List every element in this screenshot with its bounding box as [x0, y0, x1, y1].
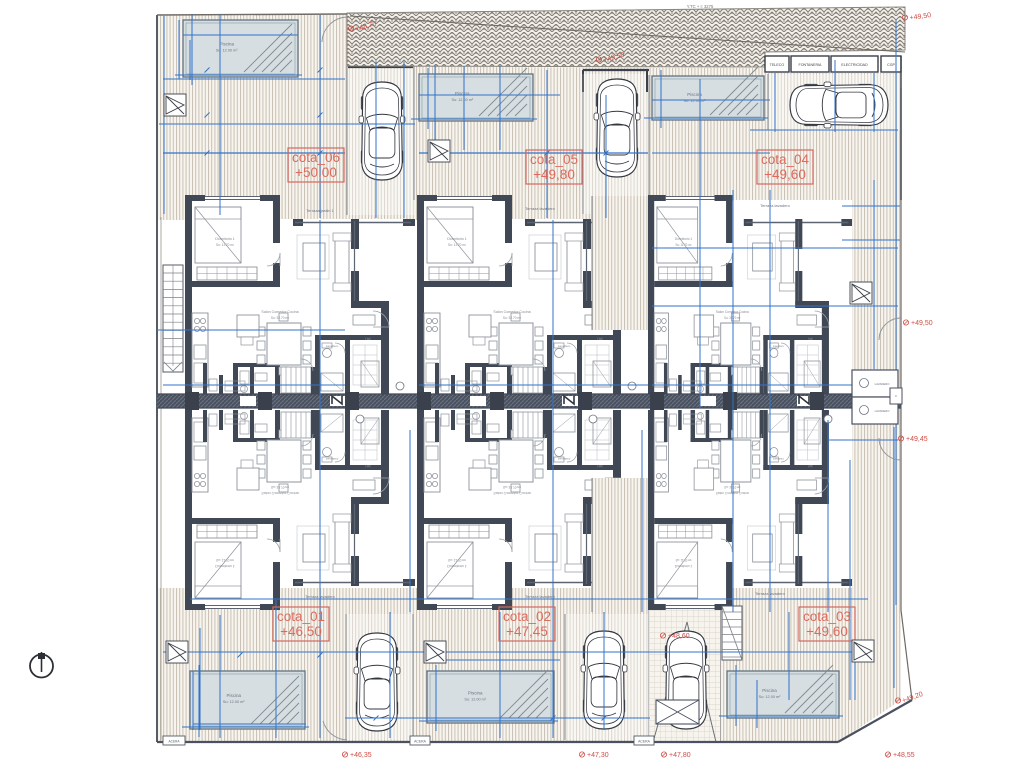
- svg-text:cota_03: cota_03: [803, 609, 851, 624]
- svg-text:Su: 12.00 m²: Su: 12.00 m²: [759, 695, 781, 699]
- svg-text:Lavadero: Lavadero: [326, 344, 339, 348]
- svg-text:Lavadero: Lavadero: [326, 457, 339, 461]
- svg-text:CGP: CGP: [887, 63, 895, 67]
- svg-text:+49,60: +49,60: [806, 624, 848, 639]
- svg-text:Su: 32.70 m²: Su: 32.70 m²: [503, 316, 521, 320]
- svg-text:TELECO: TELECO: [770, 63, 785, 67]
- svg-text:+48,60: +48,60: [668, 633, 690, 640]
- svg-text:Terraza lavadero: Terraza lavadero: [760, 203, 791, 208]
- svg-text:Piscina: Piscina: [219, 42, 234, 47]
- svg-text:+49,80: +49,80: [533, 167, 575, 182]
- svg-text:Su: 11.70 m²: Su: 11.70 m²: [448, 243, 466, 247]
- svg-text:+46,50: +46,50: [280, 624, 322, 639]
- svg-text:Su: 11.70 m²: Su: 11.70 m²: [216, 558, 234, 562]
- svg-text:Hall: Hall: [808, 464, 813, 468]
- svg-text:Su: 11.70 m²: Su: 11.70 m²: [216, 243, 234, 247]
- svg-text:ACERA: ACERA: [414, 740, 426, 744]
- svg-text:Terraza lavadero: Terraza lavadero: [305, 594, 336, 599]
- svg-text:+49,50: +49,50: [911, 320, 933, 327]
- svg-text:FONTANERIA: FONTANERIA: [799, 63, 822, 67]
- svg-text:LAVADERO: LAVADERO: [875, 382, 891, 386]
- svg-text:Salon Comedor Cocina: Salon Comedor Cocina: [716, 491, 749, 495]
- svg-text:Lavadero: Lavadero: [558, 457, 571, 461]
- svg-text:Salon Comedor Cocina: Salon Comedor Cocina: [261, 491, 298, 495]
- svg-text:Su: 32.70 m²: Su: 32.70 m²: [724, 485, 740, 489]
- svg-text:Terraza lavadero: Terraza lavadero: [755, 591, 786, 596]
- svg-text:Su: 12.00 m²: Su: 12.00 m²: [684, 99, 706, 103]
- svg-text:+47,80: +47,80: [669, 752, 691, 759]
- svg-text:Su: 32.70 m²: Su: 32.70 m²: [271, 485, 289, 489]
- svg-text:Dormitorio 1: Dormitorio 1: [447, 237, 467, 241]
- svg-text:Su: 12.00 m²: Su: 12.00 m²: [216, 49, 238, 53]
- svg-text:+49,45: +49,45: [906, 436, 928, 443]
- svg-text:Hall: Hall: [597, 337, 603, 341]
- svg-text:Terraza jardin 1: Terraza jardin 1: [306, 208, 334, 213]
- svg-text:LAVADERO: LAVADERO: [875, 409, 891, 413]
- svg-text:+47,30: +47,30: [587, 752, 609, 759]
- svg-text:Dormitorio 1: Dormitorio 1: [675, 564, 692, 568]
- svg-text:Dormitorio 1: Dormitorio 1: [675, 237, 692, 241]
- svg-text:cota_02: cota_02: [503, 609, 551, 624]
- svg-text:Su: 11.70 m²: Su: 11.70 m²: [448, 558, 466, 562]
- svg-text:Su: 32.70 m²: Su: 32.70 m²: [271, 316, 289, 320]
- svg-text:Dormitorio 1: Dormitorio 1: [215, 564, 235, 568]
- svg-text:Terraza lavadero: Terraza lavadero: [525, 594, 556, 599]
- svg-text:Hall: Hall: [808, 337, 813, 341]
- svg-text:cota_06: cota_06: [292, 150, 340, 165]
- svg-text:+48,55: +48,55: [893, 752, 915, 759]
- svg-text:Lavadero: Lavadero: [773, 457, 784, 461]
- svg-text:Su: 32.70 m²: Su: 32.70 m²: [724, 316, 740, 320]
- svg-text:Dormitorio 1: Dormitorio 1: [447, 564, 467, 568]
- svg-text:Su: 12.00 m²: Su: 12.00 m²: [464, 697, 486, 701]
- svg-text:Su: 32.70 m²: Su: 32.70 m²: [503, 485, 521, 489]
- svg-text:ELECTRICIDAD: ELECTRICIDAD: [841, 63, 868, 67]
- svg-text:Salon Comedor Cocina: Salon Comedor Cocina: [493, 310, 530, 314]
- svg-text:Hall: Hall: [365, 337, 371, 341]
- svg-text:Salon Comedor Cocina: Salon Comedor Cocina: [716, 310, 749, 314]
- svg-text:+46,35: +46,35: [350, 752, 372, 759]
- svg-text:cota_05: cota_05: [530, 152, 578, 167]
- svg-text:+47,45: +47,45: [506, 624, 548, 639]
- svg-text:Y.TC + I: 3275: Y.TC + I: 3275: [687, 4, 714, 9]
- svg-text:cota_04: cota_04: [761, 152, 810, 167]
- svg-text:Terraza lavadero: Terraza lavadero: [525, 206, 556, 211]
- svg-text:Su: 12.00 m²: Su: 12.00 m²: [451, 98, 473, 102]
- svg-text:Hall: Hall: [365, 464, 371, 468]
- svg-text:Salon Comedor Cocina: Salon Comedor Cocina: [261, 310, 298, 314]
- svg-text:Hall: Hall: [597, 464, 603, 468]
- svg-text:Su: 11.70 m²: Su: 11.70 m²: [675, 243, 691, 247]
- svg-text:ACERA: ACERA: [169, 740, 181, 744]
- svg-text:cota_01: cota_01: [277, 609, 325, 624]
- svg-text:Dormitorio 1: Dormitorio 1: [215, 237, 235, 241]
- svg-text:Su: 11.70 m²: Su: 11.70 m²: [675, 558, 691, 562]
- svg-text:Piscina: Piscina: [468, 690, 483, 695]
- svg-text:Salon Comedor Cocina: Salon Comedor Cocina: [493, 491, 530, 495]
- svg-text:+50,00: +50,00: [295, 165, 337, 180]
- svg-text:Su: 12.00 m²: Su: 12.00 m²: [223, 700, 245, 704]
- svg-text:Lavadero: Lavadero: [773, 344, 784, 348]
- svg-text:ACERA: ACERA: [638, 740, 650, 744]
- svg-text:Piscina: Piscina: [762, 688, 777, 693]
- svg-text:Piscina: Piscina: [226, 693, 241, 698]
- svg-text:Lavadero: Lavadero: [558, 344, 571, 348]
- svg-text:+49,60: +49,60: [764, 167, 806, 182]
